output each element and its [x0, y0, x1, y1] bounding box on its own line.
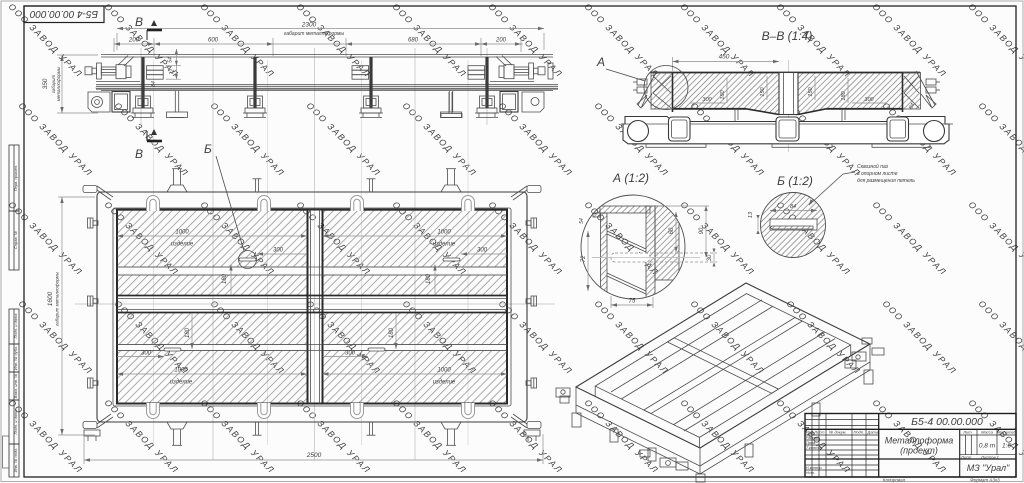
svg-text:90: 90 — [699, 227, 705, 234]
svg-text:Справ. №: Справ. № — [13, 230, 18, 249]
svg-text:180: 180 — [426, 273, 432, 284]
svg-text:680: 680 — [408, 38, 419, 44]
svg-text:Металлоформа: Металлоформа — [885, 436, 954, 446]
svg-text:Утв.: Утв. — [806, 470, 815, 475]
svg-text:металлоформы: металлоформы — [56, 66, 61, 101]
svg-text:300: 300 — [141, 351, 152, 357]
svg-text:Б5-4 00.00.000: Б5-4 00.00.000 — [911, 416, 983, 428]
svg-text:для размещения петель: для размещения петель — [857, 178, 915, 184]
svg-text:1:6: 1:6 — [1002, 443, 1011, 450]
svg-text:В–В (1:4): В–В (1:4) — [762, 29, 813, 43]
svg-text:(проект): (проект) — [900, 446, 938, 456]
svg-text:180: 180 — [389, 327, 395, 338]
svg-text:180: 180 — [222, 273, 228, 284]
svg-text:Листов 1: Листов 1 — [980, 454, 999, 459]
svg-text:54: 54 — [579, 218, 585, 224]
svg-text:Инв. № подл.: Инв. № подл. — [13, 448, 18, 473]
svg-text:84: 84 — [790, 204, 796, 210]
svg-text:1000: 1000 — [175, 230, 189, 236]
svg-text:180: 180 — [185, 327, 191, 338]
svg-text:Подп. и дата: Подп. и дата — [13, 313, 18, 339]
svg-text:72: 72 — [170, 69, 176, 75]
svg-text:1000: 1000 — [174, 368, 188, 374]
svg-text:150: 150 — [760, 86, 766, 96]
svg-text:Подп. и дата: Подп. и дата — [13, 409, 18, 435]
svg-text:В: В — [135, 15, 143, 29]
svg-text:350: 350 — [42, 78, 49, 89]
svg-text:изделие: изделие — [433, 242, 456, 248]
svg-text:2500: 2500 — [306, 452, 322, 459]
svg-text:Перв. примен.: Перв. примен. — [13, 165, 18, 192]
svg-text:габарит металлоформы: габарит металлоформы — [55, 271, 60, 326]
svg-text:МЗ "Урал": МЗ "Урал" — [967, 463, 1010, 473]
svg-text:Подп.: Подп. — [854, 430, 865, 435]
svg-text:60: 60 — [669, 227, 675, 234]
svg-text:84: 84 — [151, 81, 157, 87]
svg-text:300: 300 — [273, 248, 284, 254]
svg-text:Копировал: Копировал — [883, 478, 906, 483]
svg-text:1600: 1600 — [47, 291, 54, 306]
svg-text:75: 75 — [629, 299, 636, 305]
svg-text:А (1:2): А (1:2) — [612, 171, 649, 185]
svg-text:600: 600 — [208, 38, 219, 44]
svg-text:150: 150 — [808, 86, 814, 96]
svg-text:200: 200 — [128, 38, 140, 44]
svg-text:Сквозной паз: Сквозной паз — [857, 163, 889, 170]
svg-text:300: 300 — [864, 97, 874, 103]
svg-text:Б5-4 00.00.000: Б5-4 00.00.000 — [29, 8, 98, 19]
svg-text:изделие: изделие — [170, 380, 193, 386]
svg-text:Б: Б — [204, 142, 212, 156]
svg-text:Инв. № дубл.: Инв. № дубл. — [13, 346, 18, 371]
svg-text:13: 13 — [748, 211, 754, 218]
svg-text:180: 180 — [841, 90, 847, 100]
svg-text:180: 180 — [720, 89, 726, 99]
svg-text:Т.контр.: Т.контр. — [806, 445, 822, 450]
svg-text:Взам. инв. №: Взам. инв. № — [13, 373, 18, 398]
svg-text:В: В — [135, 147, 143, 161]
svg-text:Формат А3х3: Формат А3х3 — [970, 478, 1000, 483]
svg-text:1000: 1000 — [437, 230, 451, 236]
svg-text:1000: 1000 — [437, 368, 451, 374]
svg-text:200: 200 — [495, 38, 507, 44]
svg-text:Лит.: Лит. — [962, 430, 972, 435]
svg-text:72: 72 — [581, 255, 587, 262]
svg-text:450: 450 — [719, 54, 730, 61]
svg-text:54: 54 — [168, 57, 174, 63]
svg-text:2300: 2300 — [301, 22, 317, 29]
svg-text:№ докум.: № докум. — [829, 430, 847, 435]
svg-text:Масштаб: Масштаб — [997, 430, 1016, 435]
svg-text:Масса: Масса — [981, 430, 994, 435]
svg-text:Лист: Лист — [960, 454, 972, 459]
svg-text:изделие: изделие — [433, 380, 456, 386]
svg-text:300: 300 — [477, 248, 488, 254]
svg-text:в опорном листе: в опорном листе — [857, 171, 898, 177]
svg-text:300: 300 — [702, 97, 712, 103]
svg-text:Дата: Дата — [867, 430, 879, 435]
svg-text:габарит металлоформы: габарит металлоформы — [284, 31, 344, 37]
svg-text:30: 30 — [707, 254, 713, 261]
svg-text:А: А — [596, 55, 605, 69]
svg-text:изделие: изделие — [171, 242, 194, 248]
svg-text:0,8 т: 0,8 т — [979, 443, 996, 450]
svg-text:Изм.Лист: Изм.Лист — [806, 430, 825, 435]
svg-text:300: 300 — [345, 351, 356, 357]
svg-text:Б (1:2): Б (1:2) — [777, 174, 813, 188]
